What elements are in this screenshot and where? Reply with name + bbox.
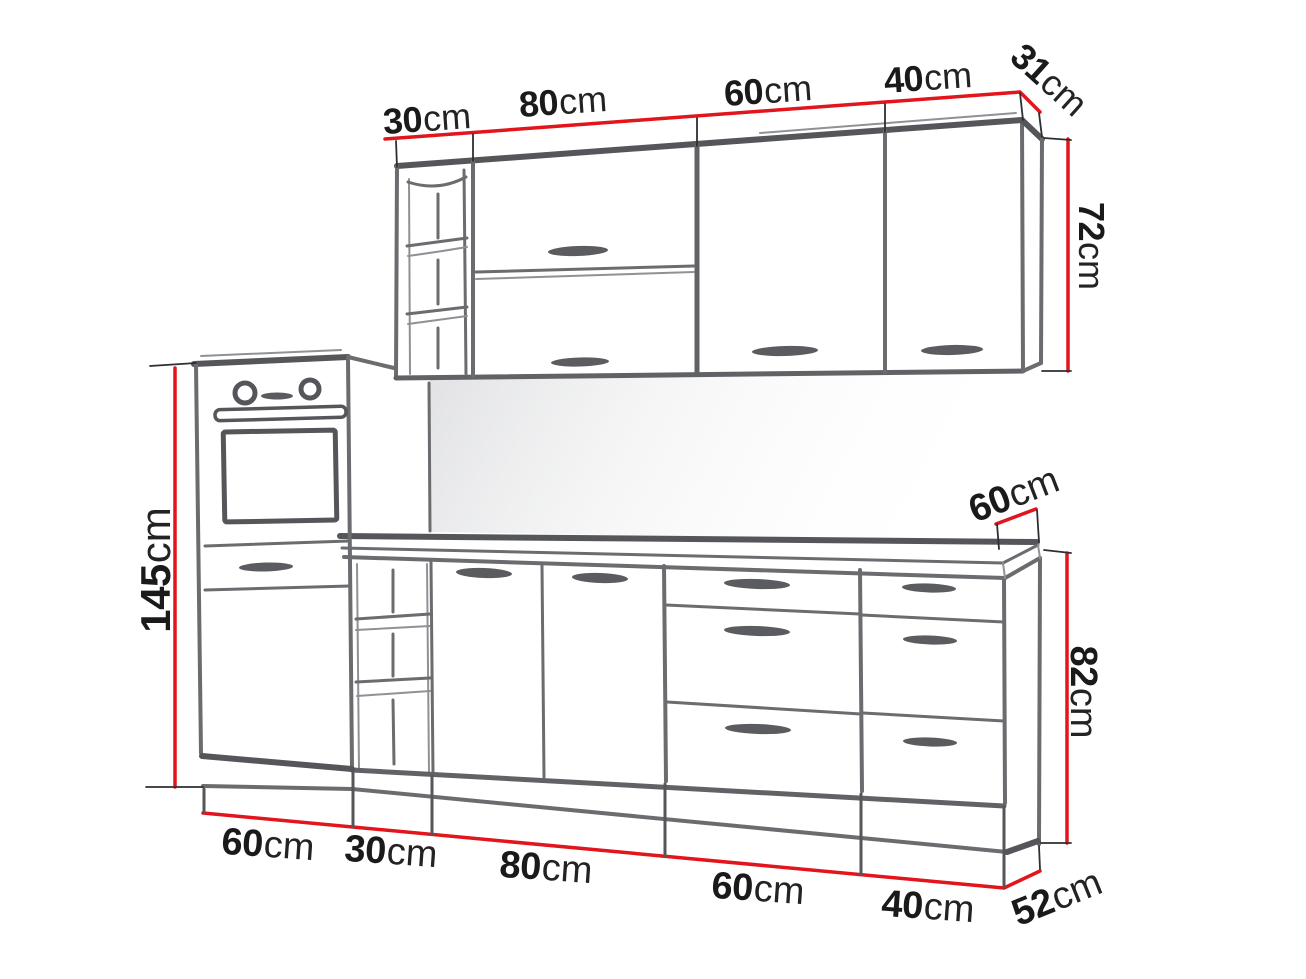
dim-label-wall-width-30: 30cm bbox=[382, 98, 472, 140]
dim-label-tall-height-145: 145cm bbox=[135, 507, 177, 633]
dim-label-wall-width-60: 60cm bbox=[723, 70, 813, 112]
dim-value: 72 bbox=[1071, 202, 1112, 241]
dim-unit: cm bbox=[558, 78, 609, 122]
dim-value: 80 bbox=[518, 81, 560, 125]
dim-unit: cm bbox=[922, 886, 975, 931]
dim-label-base-width-60: 60cm bbox=[220, 823, 315, 867]
dim-label-wall-width-40: 40cm bbox=[883, 57, 973, 99]
door-handle bbox=[921, 344, 983, 356]
dim-value: 60 bbox=[710, 865, 754, 910]
drawer-handle bbox=[903, 737, 957, 748]
dim-unit: cm bbox=[540, 847, 593, 892]
door-handle bbox=[572, 572, 628, 584]
dim-value: 40 bbox=[880, 883, 924, 928]
door-handle bbox=[548, 245, 608, 257]
dim-unit: cm bbox=[1071, 242, 1112, 290]
base-width-dimension-line bbox=[203, 813, 1040, 888]
dim-label-base-height-82: 82cm bbox=[1064, 646, 1102, 739]
oven-window bbox=[223, 430, 337, 522]
dim-label-wall-height-72: 72cm bbox=[1073, 202, 1109, 290]
dim-value: 82 bbox=[1062, 646, 1104, 687]
dim-unit: cm bbox=[1062, 688, 1104, 739]
dim-unit: cm bbox=[923, 54, 974, 98]
dim-value: 60 bbox=[220, 821, 264, 866]
kitchen-line-drawing bbox=[0, 0, 1306, 979]
dim-unit: cm bbox=[422, 95, 473, 139]
wall-cabinets-drawing bbox=[396, 113, 1042, 378]
kitchen-dimension-diagram: 30cm 80cm 60cm 40cm 31cm 72cm 145cm 60cm… bbox=[0, 0, 1306, 979]
drawer-handle bbox=[725, 723, 791, 735]
dim-label-base-width-40: 40cm bbox=[880, 885, 975, 929]
dim-value: 30 bbox=[343, 828, 387, 873]
dim-unit: cm bbox=[262, 824, 315, 869]
dim-unit: cm bbox=[763, 67, 814, 111]
oven-knob-right bbox=[301, 380, 319, 398]
door-handle bbox=[456, 567, 512, 579]
backsplash-panel bbox=[429, 372, 1034, 541]
dim-label-base-width-80: 80cm bbox=[498, 846, 593, 890]
drawer-handle bbox=[724, 578, 790, 590]
dim-value: 40 bbox=[883, 57, 925, 101]
drawer-handle bbox=[724, 625, 790, 637]
countertop-drawing bbox=[340, 536, 1040, 578]
dim-unit: cm bbox=[752, 868, 805, 913]
dim-label-base-width-60b: 60cm bbox=[710, 867, 805, 911]
dim-value: 30 bbox=[382, 98, 424, 142]
dim-label-base-width-30: 30cm bbox=[343, 830, 438, 874]
dim-unit: cm bbox=[132, 507, 179, 563]
drawer-handle bbox=[902, 583, 956, 594]
wall-width-dimension-line bbox=[385, 92, 1040, 139]
drawer-handle bbox=[903, 635, 957, 646]
oven-display bbox=[261, 393, 293, 400]
dim-unit: cm bbox=[385, 831, 438, 876]
drawer-handle bbox=[239, 562, 293, 572]
base-cabinets-drawing bbox=[203, 558, 1040, 852]
dim-value: 145 bbox=[132, 564, 179, 633]
oven-handle-bar bbox=[215, 406, 346, 421]
oven-knob-left bbox=[235, 383, 255, 403]
door-handle bbox=[551, 357, 609, 368]
dim-value: 80 bbox=[498, 844, 542, 889]
dim-value: 60 bbox=[723, 70, 765, 114]
door-handle bbox=[752, 345, 818, 357]
dim-label-wall-width-80: 80cm bbox=[518, 81, 608, 123]
